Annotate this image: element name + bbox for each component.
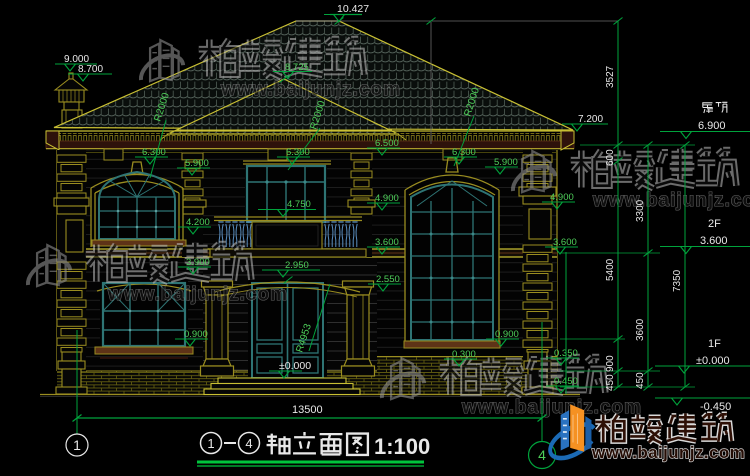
- svg-text:3527: 3527: [605, 65, 616, 88]
- svg-text:600: 600: [605, 149, 616, 166]
- svg-text:5.900: 5.900: [494, 157, 518, 168]
- svg-text:4: 4: [245, 436, 252, 451]
- svg-text:10.427: 10.427: [337, 3, 369, 15]
- svg-text:4: 4: [538, 447, 546, 463]
- svg-text:3300: 3300: [635, 199, 646, 222]
- svg-text:8.700: 8.700: [78, 64, 103, 75]
- svg-text:www.baijunjz.com: www.baijunjz.com: [220, 79, 401, 100]
- svg-text:450: 450: [605, 374, 616, 391]
- svg-text:4.900: 4.900: [550, 192, 574, 203]
- svg-text:4.900: 4.900: [375, 193, 399, 204]
- svg-text:1: 1: [73, 437, 81, 453]
- svg-text:6.300: 6.300: [142, 147, 166, 158]
- svg-text:7.200: 7.200: [578, 114, 603, 125]
- svg-text:www.baijunjz.com: www.baijunjz.com: [592, 190, 750, 211]
- svg-text:www.baijunjz.com: www.baijunjz.com: [591, 443, 745, 462]
- svg-text:6.900: 6.900: [698, 120, 726, 132]
- svg-text:13500: 13500: [292, 404, 323, 416]
- svg-text:5400: 5400: [605, 258, 616, 281]
- svg-text:2F: 2F: [708, 218, 721, 230]
- svg-text:3.600: 3.600: [375, 237, 399, 248]
- svg-text:2.550: 2.550: [376, 274, 400, 285]
- svg-text:0.900: 0.900: [184, 329, 208, 340]
- svg-text:-0.450: -0.450: [700, 401, 731, 413]
- svg-text:3.900: 3.900: [186, 257, 210, 268]
- svg-text:4.750: 4.750: [287, 199, 311, 210]
- svg-text:6.300: 6.300: [452, 147, 476, 158]
- svg-text:±0.000: ±0.000: [279, 360, 311, 372]
- svg-text:1F: 1F: [708, 338, 721, 350]
- svg-text:5.900: 5.900: [185, 158, 209, 169]
- svg-text:2.950: 2.950: [285, 260, 309, 271]
- svg-text:0.900: 0.900: [495, 329, 519, 340]
- svg-text:7350: 7350: [672, 269, 683, 292]
- svg-text:www.baijunjz.com: www.baijunjz.com: [107, 284, 288, 305]
- svg-text:0.300: 0.300: [452, 349, 476, 360]
- svg-text:3.600: 3.600: [700, 235, 728, 247]
- svg-text:4.200: 4.200: [186, 217, 210, 228]
- svg-text:1:100: 1:100: [374, 434, 430, 459]
- svg-text:1: 1: [207, 436, 214, 451]
- svg-text:6.500: 6.500: [375, 138, 399, 149]
- svg-text:900: 900: [605, 355, 616, 372]
- svg-text:3.600: 3.600: [553, 237, 577, 248]
- svg-text:±0.000: ±0.000: [696, 355, 730, 367]
- svg-text:3600: 3600: [635, 318, 646, 341]
- svg-text:450: 450: [635, 372, 646, 389]
